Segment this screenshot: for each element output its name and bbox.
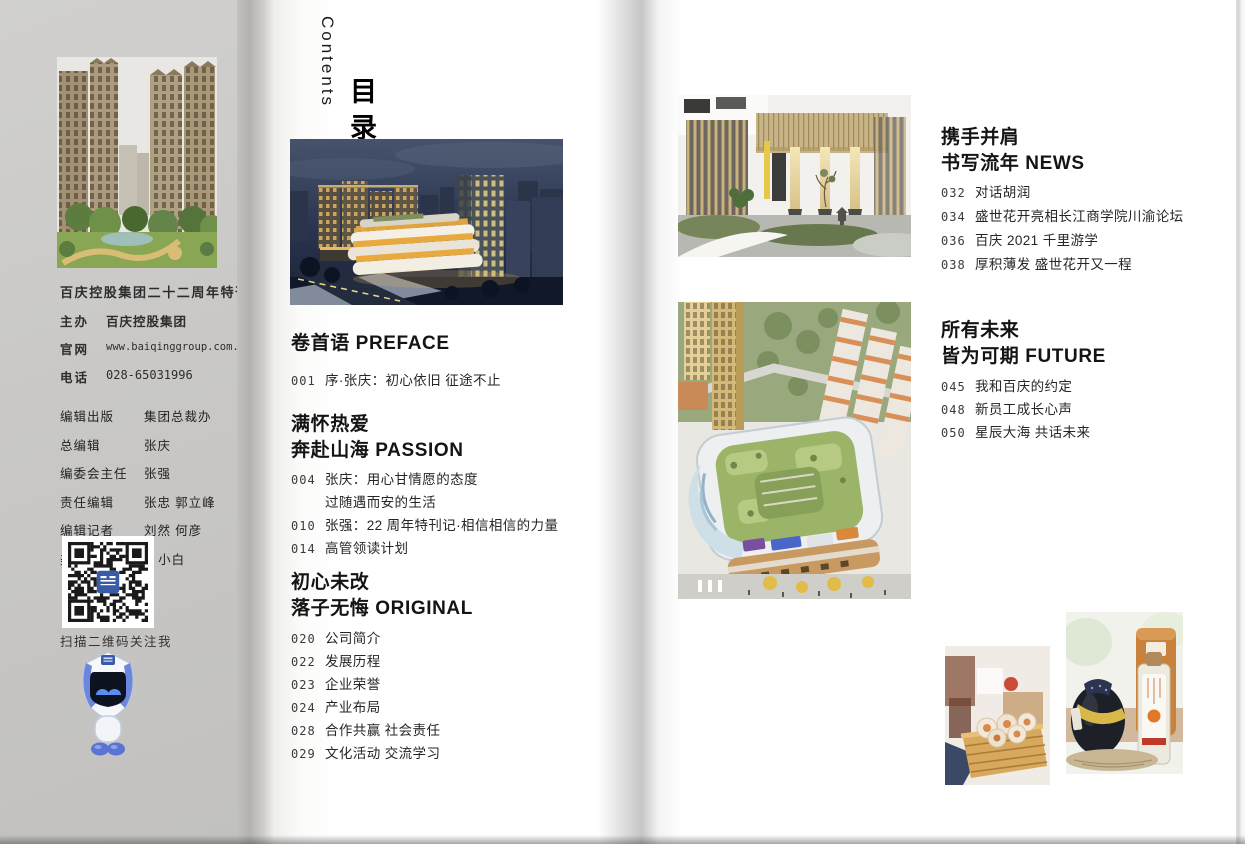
publication-phone-number: 028-65031996 <box>106 367 193 386</box>
toc-entry-number: 023 <box>291 677 325 693</box>
wechat-qr-code <box>62 536 154 628</box>
toc-entry: 032 对话胡润 <box>941 185 1184 201</box>
toc-entry-title: 百庆 2021 千里游学 <box>975 233 1098 249</box>
toc-entry: 014 高管领读计划 <box>291 541 558 557</box>
contents-page-right: 携手并肩 书写流年 NEWS 032 对话胡润 034 盛世花开亮相长江商学院川… <box>612 0 1237 844</box>
toc-entry-number: 048 <box>941 402 975 418</box>
toc-entry-number: 036 <box>941 233 975 249</box>
aerial-complex-render <box>678 302 911 599</box>
contents-page-left: Contents 目录 <box>273 0 612 844</box>
toc-entry-title: 对话胡润 <box>975 185 1031 201</box>
credit-row: 编辑出版 集团总裁办 <box>60 406 216 425</box>
toc-entry-title: 我和百庆的约定 <box>975 379 1072 395</box>
night-complex-render <box>290 139 563 305</box>
toc-entry-number: 024 <box>291 700 325 716</box>
toc-entry-number: 038 <box>941 257 975 273</box>
contents-title-en: Contents <box>317 16 337 131</box>
toc-entry: 022 发展历程 <box>291 654 473 670</box>
section-future: 所有未来 皆为可期 FUTURE 045 我和百庆的约定 048 新员工成长心声… <box>941 318 1106 448</box>
toc-entry-number: 004 <box>291 472 325 488</box>
toc-entry-title: 过随遇而安的生活 <box>325 495 436 511</box>
toc-entry-title: 企业荣誉 <box>325 677 381 693</box>
credit-label: 责任编辑 <box>60 492 144 511</box>
publication-row-host: 主办 百庆控股集团 <box>60 311 232 330</box>
toc-entry: 024 产业布局 <box>291 700 473 716</box>
credit-label: 编委会主任 <box>60 463 144 482</box>
toc-entry-title: 高管领读计划 <box>325 541 408 557</box>
toc-entry-number: 045 <box>941 379 975 395</box>
credit-label: 总编辑 <box>60 435 144 454</box>
credit-value: 张庆 <box>144 435 171 454</box>
toc-entry: 048 新员工成长心声 <box>941 402 1106 418</box>
gift-basket-photo <box>945 646 1050 785</box>
page-fold <box>237 0 273 844</box>
publication-row-website: 官网 www.baiqinggroup.com.cn <box>60 339 232 358</box>
toc-entry: 050 星辰大海 共话未来 <box>941 425 1106 441</box>
left-flap: 百庆控股集团二十二周年特刊 主办 百庆控股集团 官网 www.baiqinggr… <box>0 0 237 844</box>
publication-row-label: 电话 <box>60 367 106 386</box>
toc-entry-title: 星辰大海 共话未来 <box>975 425 1090 441</box>
section-original: 初心未改 落子无悔 ORIGINAL 020 公司简介 022 发展历程 023… <box>291 570 473 769</box>
magazine-spread: 百庆控股集团二十二周年特刊 主办 百庆控股集团 官网 www.baiqinggr… <box>0 0 1245 844</box>
section-heading: 书写流年 NEWS <box>941 151 1184 177</box>
toc-entry: 004 张庆：用心甘情愿的态度 <box>291 472 558 488</box>
toc-entry: 020 公司简介 <box>291 631 473 647</box>
section-news: 携手并肩 书写流年 NEWS 032 对话胡润 034 盛世花开亮相长江商学院川… <box>941 125 1184 281</box>
toc-entry-number: 022 <box>291 654 325 670</box>
publication-info: 百庆控股集团二十二周年特刊 主办 百庆控股集团 官网 www.baiqinggr… <box>60 282 232 395</box>
robot-mascot <box>70 650 146 760</box>
toc-entry-number: 014 <box>291 541 325 557</box>
publication-row-phone: 电话 028-65031996 <box>60 367 232 386</box>
page-right-edge <box>1236 0 1245 844</box>
toc-entry-title: 张庆：用心甘情愿的态度 <box>325 472 478 488</box>
publication-row-value: 百庆控股集团 <box>106 311 187 330</box>
toc-entry-title: 厚积薄发 盛世花开又一程 <box>975 257 1132 273</box>
toc-entry: 过随遇而安的生活 <box>291 495 558 511</box>
toc-entry: 034 盛世花开亮相长江商学院川渝论坛 <box>941 209 1184 225</box>
toc-entry-number: 001 <box>291 373 325 389</box>
credit-row: 编委会主任 张强 <box>60 463 216 482</box>
section-heading: 奔赴山海 PASSION <box>291 438 558 464</box>
toc-entry: 028 合作共赢 社会责任 <box>291 723 473 739</box>
credit-label: 编辑出版 <box>60 406 144 425</box>
section-heading: 落子无悔 ORIGINAL <box>291 596 473 622</box>
section-preface: 卷首语 PREFACE 001 序·张庆：初心依旧 征途不止 <box>291 331 501 396</box>
section-heading: 初心未改 <box>291 570 473 596</box>
toc-entry-title: 盛世花开亮相长江商学院川渝论坛 <box>975 209 1184 225</box>
toc-entry-number: 032 <box>941 185 975 201</box>
publication-row-label: 主办 <box>60 311 106 330</box>
section-passion: 满怀热爱 奔赴山海 PASSION 004 张庆：用心甘情愿的态度 过随遇而安的… <box>291 412 558 564</box>
section-heading: 满怀热爱 <box>291 412 558 438</box>
section-heading: 皆为可期 FUTURE <box>941 344 1106 370</box>
toc-entry-title: 公司简介 <box>325 631 381 647</box>
toc-entry: 010 张强：22 周年特刊记·相信相信的力量 <box>291 518 558 534</box>
residential-towers-photo <box>57 57 217 268</box>
credit-value: 张强 <box>144 463 171 482</box>
toc-entry-number: 034 <box>941 209 975 225</box>
toc-entry-title: 文化活动 交流学习 <box>325 746 440 762</box>
toc-entry-title: 合作共赢 社会责任 <box>325 723 440 739</box>
qr-caption: 扫描二维码关注我 <box>60 631 172 650</box>
toc-entry-title: 张强：22 周年特刊记·相信相信的力量 <box>325 518 558 534</box>
toc-entry-title: 序·张庆：初心依旧 征途不止 <box>325 373 501 389</box>
toc-entry: 001 序·张庆：初心依旧 征途不止 <box>291 373 501 389</box>
publication-website-url: www.baiqinggroup.com.cn <box>106 339 251 358</box>
qr-center-logo <box>97 571 119 593</box>
credit-value: 集团总裁办 <box>144 406 212 425</box>
toc-entry-number: 028 <box>291 723 325 739</box>
section-heading: 携手并肩 <box>941 125 1184 151</box>
toc-entry: 029 文化活动 交流学习 <box>291 746 473 762</box>
toc-entry-title: 新员工成长心声 <box>975 402 1072 418</box>
toc-entry: 023 企业荣誉 <box>291 677 473 693</box>
toc-entry: 036 百庆 2021 千里游学 <box>941 233 1184 249</box>
toc-entry-number: 010 <box>291 518 325 534</box>
publication-row-label: 官网 <box>60 339 106 358</box>
toc-entry-title: 产业布局 <box>325 700 381 716</box>
credit-value: 张忠 郭立峰 <box>144 492 216 511</box>
section-heading: 卷首语 PREFACE <box>291 331 501 357</box>
courtyard-photo <box>678 95 911 257</box>
credit-row: 责任编辑 张忠 郭立峰 <box>60 492 216 511</box>
credit-row: 总编辑 张庆 <box>60 435 216 454</box>
wine-bottles-photo <box>1066 612 1183 774</box>
toc-entry-number: 050 <box>941 425 975 441</box>
toc-entry-number: 029 <box>291 746 325 762</box>
toc-entry: 038 厚积薄发 盛世花开又一程 <box>941 257 1184 273</box>
publication-title: 百庆控股集团二十二周年特刊 <box>60 282 232 301</box>
section-heading: 所有未来 <box>941 318 1106 344</box>
toc-entry: 045 我和百庆的约定 <box>941 379 1106 395</box>
toc-entry-number: 020 <box>291 631 325 647</box>
toc-entry-title: 发展历程 <box>325 654 381 670</box>
